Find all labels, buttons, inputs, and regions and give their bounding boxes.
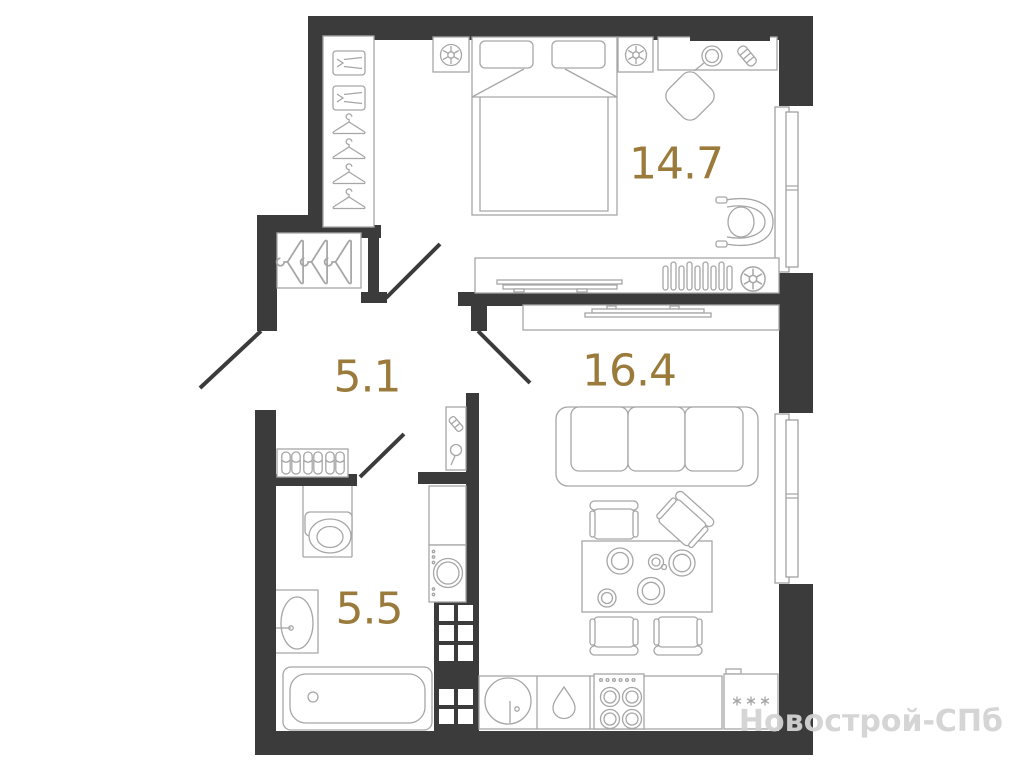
washing-machine: [429, 545, 466, 602]
nightstand-right: [618, 37, 653, 72]
nightstand-left: [433, 37, 469, 72]
floor-plan-canvas: 14.7 5.1 16.4 5.5 Новострой-СПб: [0, 0, 1011, 768]
kitchen-counter: [479, 669, 778, 729]
wardrobe: [323, 36, 374, 227]
bathroom-sink: [276, 590, 318, 653]
bedroom-area-label: 14.7: [629, 139, 723, 190]
watermark: Новострой-СПб: [739, 704, 1003, 739]
ventilation-shaft: [434, 600, 479, 731]
shoe-shelf: [277, 449, 348, 477]
sofa: [556, 407, 758, 486]
bathroom-door: [360, 434, 404, 477]
kitchen-sink: [485, 678, 531, 724]
hallway-area-label: 5.1: [334, 352, 401, 403]
entry-door: [200, 331, 261, 388]
bathtub: [283, 667, 432, 730]
living-door: [478, 331, 530, 383]
living-kitchen-area-label: 16.4: [582, 346, 676, 397]
wall-mirror: [690, 36, 770, 41]
cabinet: [429, 486, 466, 545]
hall-shelf: [446, 407, 466, 470]
utility-niche: [429, 486, 466, 602]
floor-plan-svg: [0, 0, 1011, 768]
window-bedroom: [775, 107, 798, 272]
armchair: [716, 197, 773, 247]
bedroom-door: [386, 244, 440, 298]
bedroom-console: [475, 258, 779, 293]
bathroom-area-label: 5.5: [336, 584, 403, 635]
toilet: [305, 512, 352, 553]
double-bed: [472, 37, 617, 215]
window-living: [775, 414, 798, 583]
vanity-chair: [662, 68, 719, 125]
plant: [741, 267, 765, 291]
books: [663, 262, 732, 290]
tv-stand-living: [523, 305, 779, 330]
vanity-table: [658, 37, 777, 71]
stove: [594, 674, 644, 729]
coat-rack: [277, 233, 361, 288]
dining-table: [582, 541, 712, 612]
